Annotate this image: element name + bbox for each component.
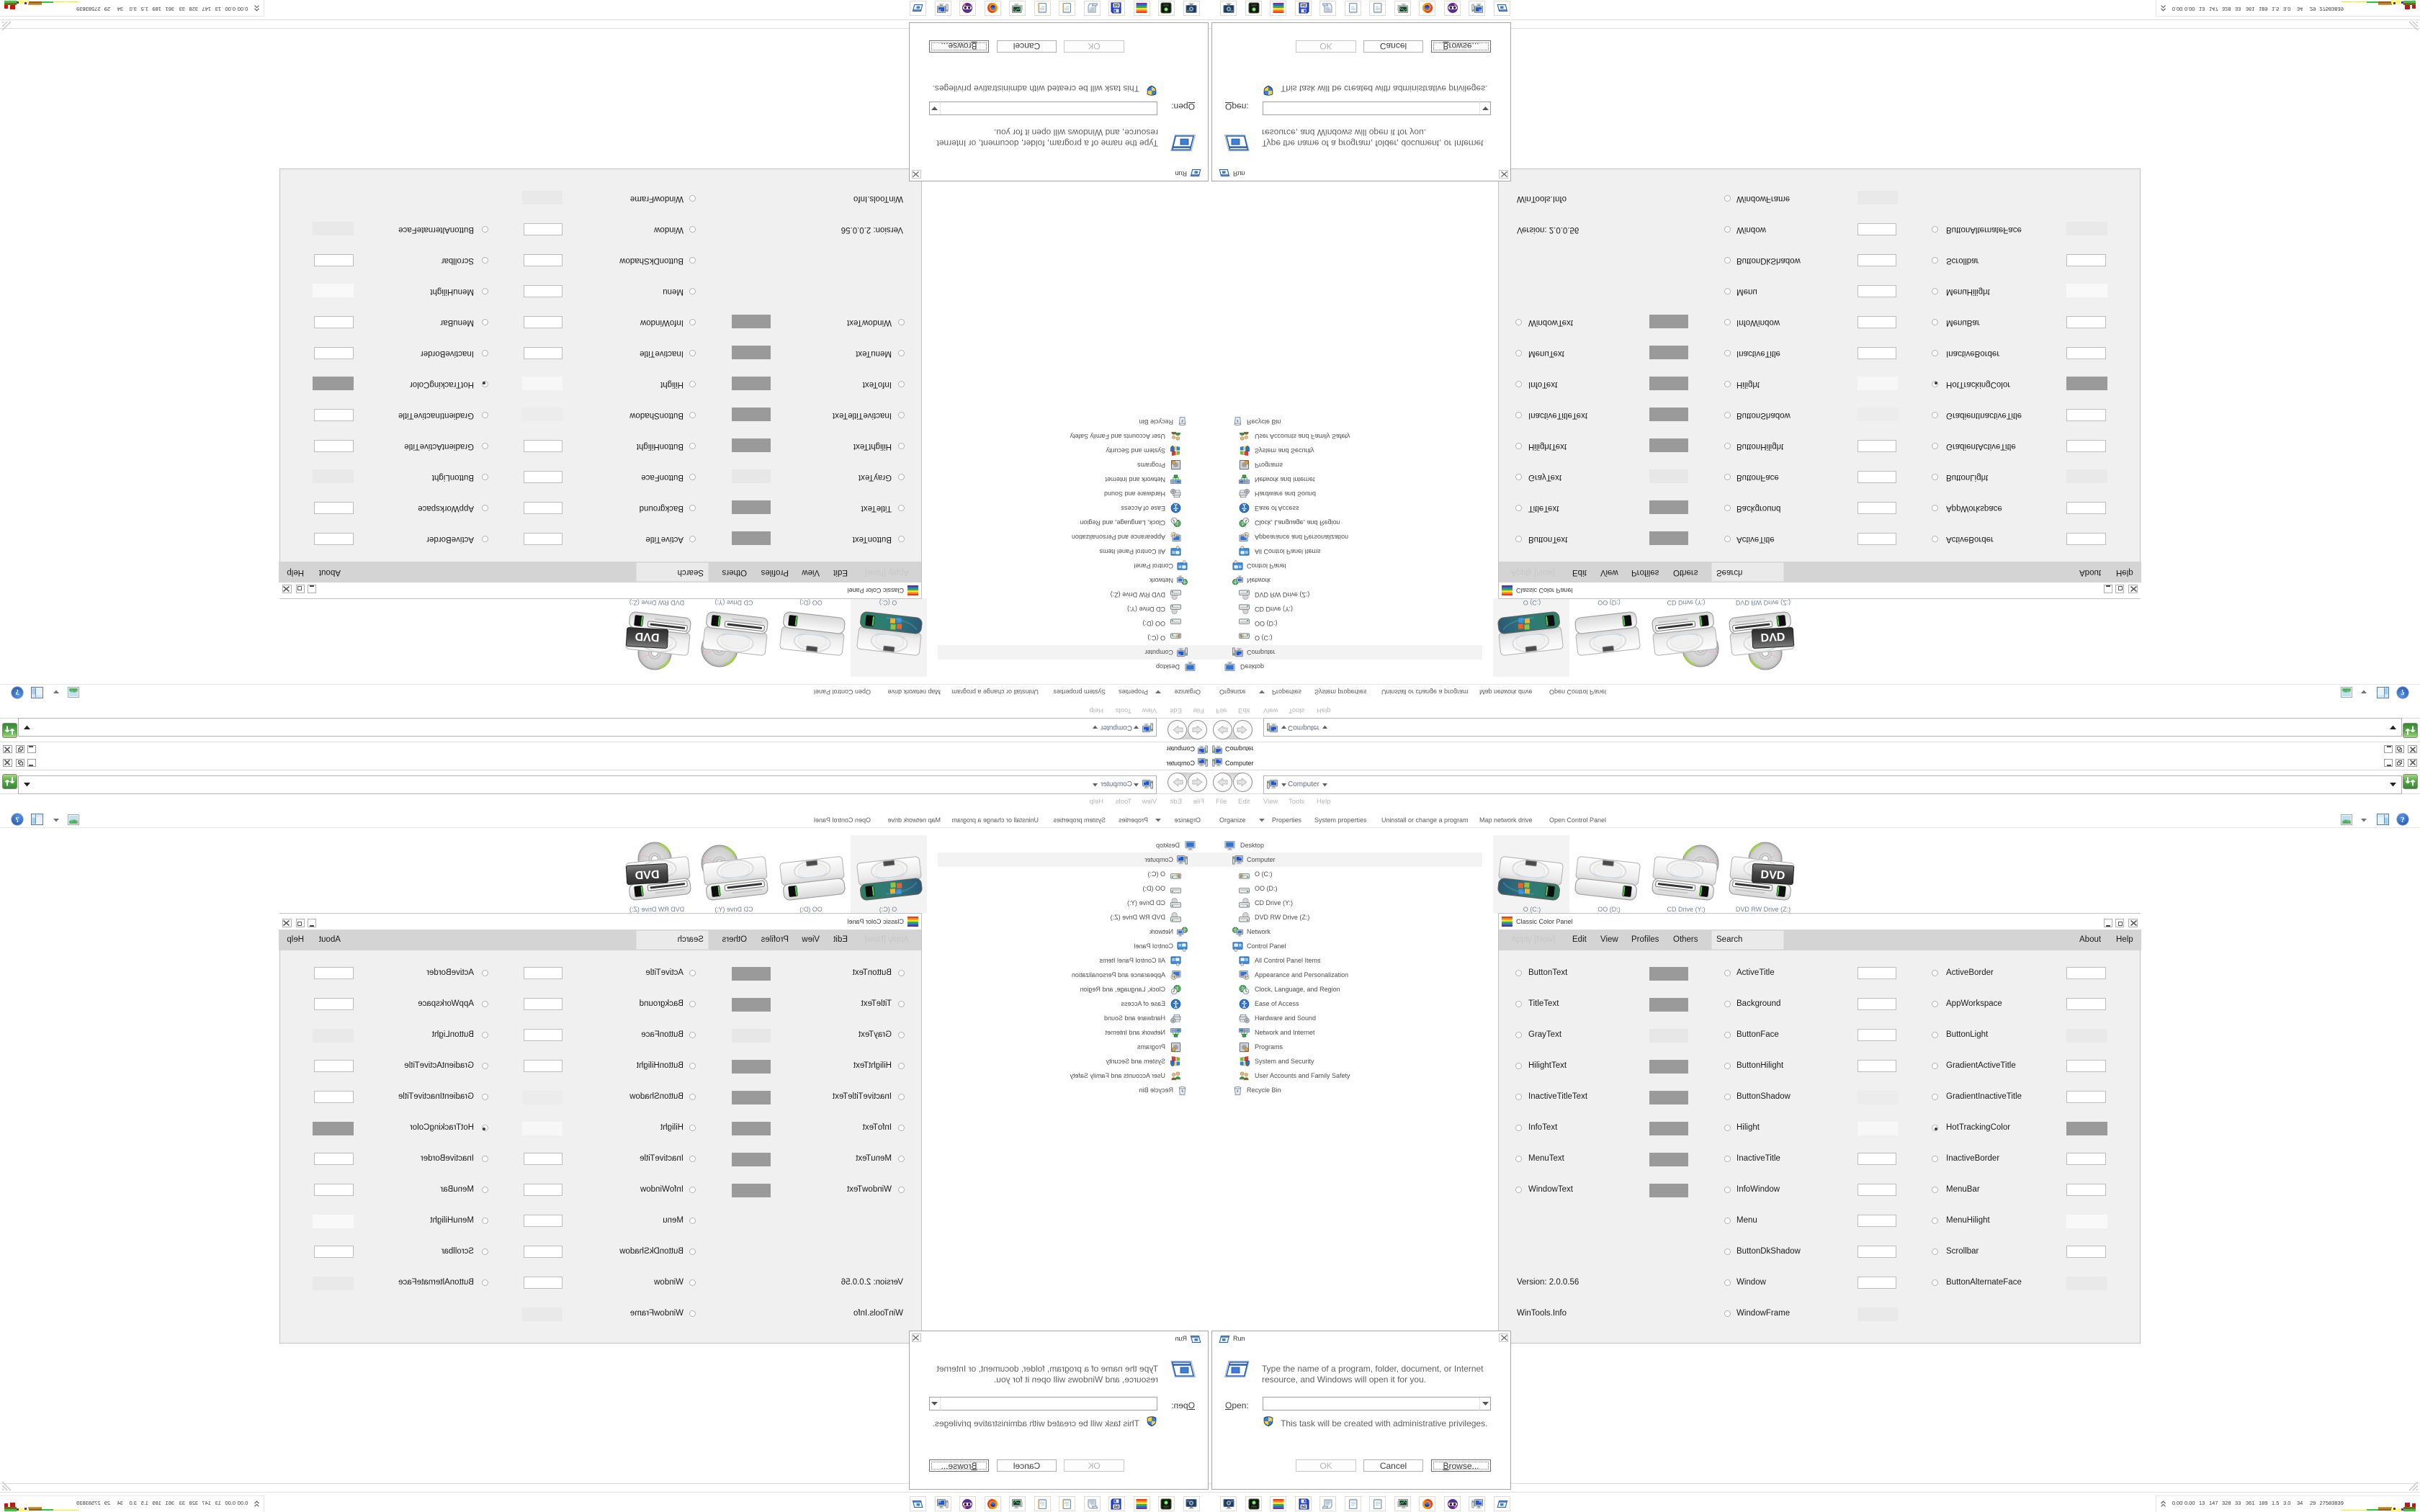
svg-text:64: 64 <box>1301 1505 1306 1509</box>
svg-text:DVD: DVD <box>635 630 660 644</box>
svg-text:?: ? <box>2401 816 2405 824</box>
svg-text:64: 64 <box>1301 3 1306 7</box>
svg-text:64: 64 <box>1115 3 1119 7</box>
svg-text:?: ? <box>2401 688 2405 696</box>
svg-text:DVD: DVD <box>1760 869 1785 883</box>
svg-text:DVD: DVD <box>635 869 660 883</box>
svg-text:?: ? <box>15 816 19 824</box>
svg-text:?: ? <box>15 688 19 696</box>
svg-text:DVD: DVD <box>1760 630 1785 644</box>
svg-text:64: 64 <box>1115 1505 1119 1509</box>
